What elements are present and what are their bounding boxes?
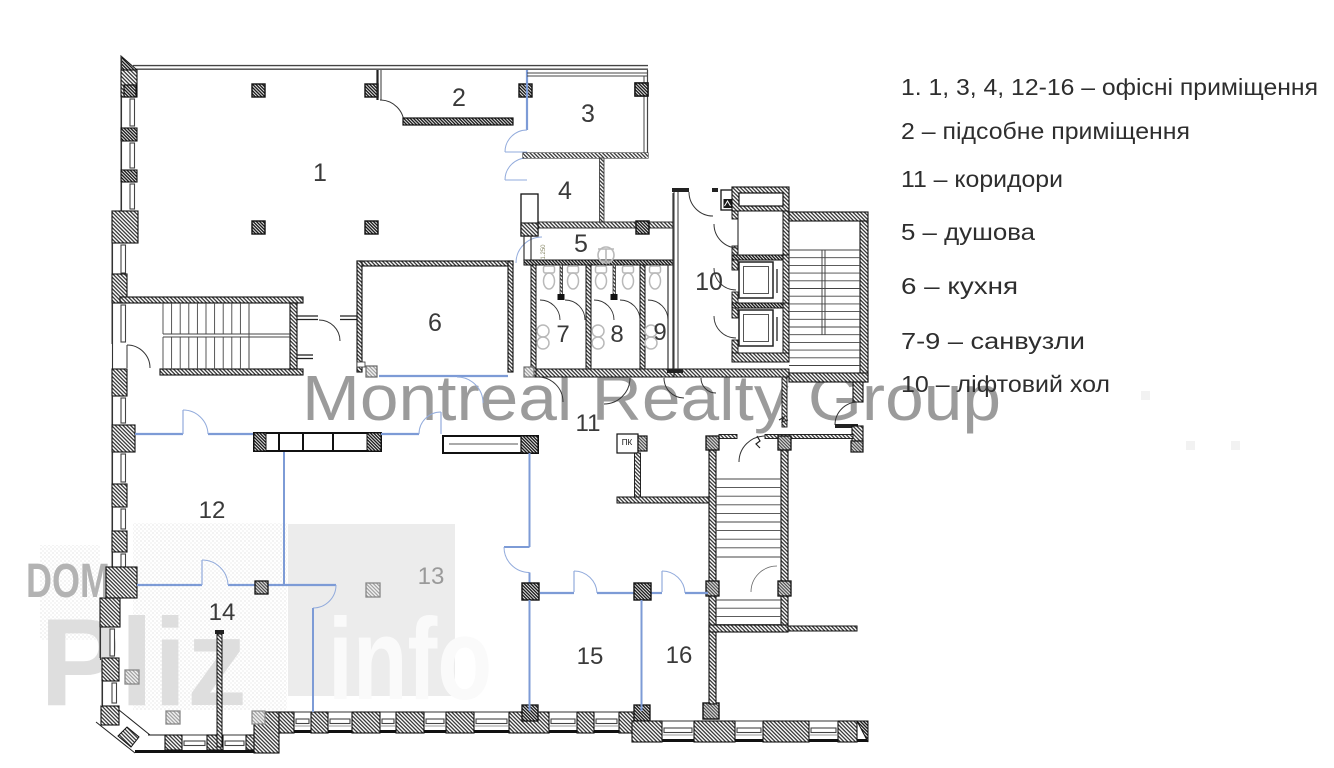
svg-text:5 – душова: 5 – душова bbox=[901, 219, 1035, 245]
svg-text:7: 7 bbox=[556, 321, 569, 348]
svg-text:15: 15 bbox=[577, 643, 604, 670]
svg-text:7-9 – санвузли: 7-9 – санвузли bbox=[901, 328, 1085, 354]
svg-text:6 – кухня: 6 – кухня bbox=[901, 273, 1018, 299]
svg-text:12: 12 bbox=[199, 497, 226, 524]
svg-text:1. 1, 3, 4, 12-16 – офісні при: 1. 1, 3, 4, 12-16 – офісні приміщення bbox=[901, 74, 1318, 100]
svg-text:2 – підсобне приміщення: 2 – підсобне приміщення bbox=[901, 118, 1190, 144]
svg-text:16: 16 bbox=[666, 642, 693, 669]
svg-text:11 – коридори: 11 – коридори bbox=[901, 166, 1063, 192]
svg-text:6: 6 bbox=[428, 309, 442, 337]
svg-text:11: 11 bbox=[576, 410, 601, 437]
svg-text:8: 8 bbox=[610, 321, 623, 348]
svg-text:ПК: ПК bbox=[622, 438, 633, 447]
svg-text:9: 9 bbox=[653, 319, 666, 346]
svg-text:5: 5 bbox=[574, 230, 588, 258]
svg-text:1: 1 bbox=[313, 159, 327, 187]
svg-text:1.250: 1.250 bbox=[541, 244, 547, 260]
svg-text:info: info bbox=[328, 594, 492, 724]
svg-text:13: 13 bbox=[418, 563, 445, 590]
svg-text:2: 2 bbox=[452, 84, 466, 112]
svg-text:4: 4 bbox=[558, 177, 572, 205]
svg-text:14: 14 bbox=[209, 599, 236, 626]
svg-text:3: 3 bbox=[581, 100, 595, 128]
svg-text:10 – ліфтовий хол: 10 – ліфтовий хол bbox=[901, 371, 1110, 397]
